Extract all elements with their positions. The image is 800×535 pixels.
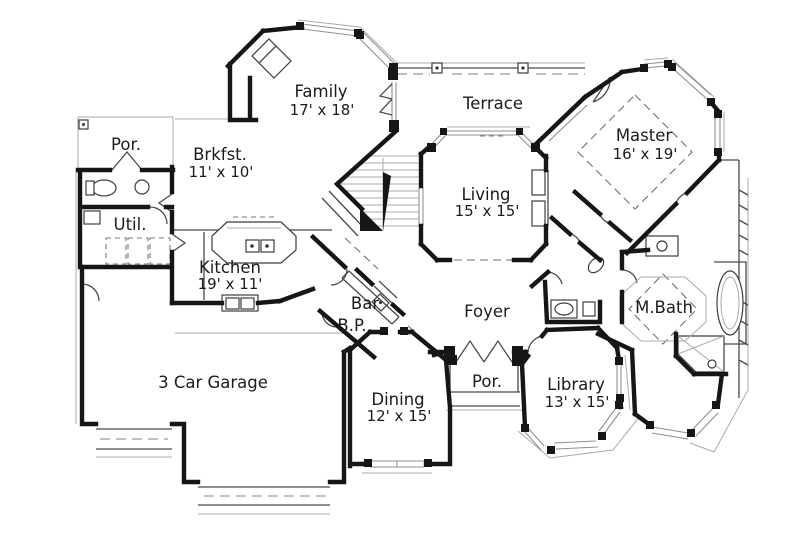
floor-plan-drawing: Family 17' x 18' Terrace Master 16' x 19… [0, 0, 800, 535]
living-builtin [532, 170, 545, 195]
room-label-por-upper: Por. [111, 135, 141, 154]
oven-icon [222, 295, 258, 311]
room-label-por-lower: Por. [472, 372, 502, 391]
room-label-foyer: Foyer [464, 302, 510, 321]
room-label-library: Library [547, 375, 605, 394]
kitchen-island [212, 222, 296, 263]
util-sink [84, 211, 100, 224]
dashed-lines [100, 74, 697, 496]
washer-dryer-icon [106, 238, 170, 264]
room-label-family: Family [294, 82, 347, 101]
eave-and-floor-lines [76, 20, 748, 514]
room-labels: Family 17' x 18' Terrace Master 16' x 19… [111, 82, 693, 425]
room-label-bp: B.P. [337, 316, 366, 335]
walls-hall-wc [532, 192, 630, 322]
room-label-mbath: M.Bath [635, 298, 693, 317]
room-label-brkfst: Brkfst. [193, 145, 247, 164]
room-dims-dining: 12' x 15' [367, 407, 432, 425]
room-dims-master: 16' x 19' [613, 145, 678, 163]
room-label-util: Util. [114, 215, 147, 234]
room-dims-brkfst: 11' x 10' [189, 163, 254, 181]
fireplace-icon [252, 39, 291, 78]
room-dims-kitchen: 19' x 11' [198, 275, 263, 293]
room-label-master: Master [616, 126, 673, 145]
sink-icon [135, 180, 149, 194]
hall-sink [657, 241, 667, 251]
floor-plan-page: Family 17' x 18' Terrace Master 16' x 19… [0, 0, 800, 535]
toilet-tank [86, 181, 94, 195]
wc-cabinet [583, 302, 595, 316]
toilet-icon [92, 180, 116, 196]
vanity-sink [555, 303, 573, 315]
room-label-bar: Bar [351, 294, 379, 313]
stair-rail-wedge [383, 172, 391, 231]
room-label-terrace: Terrace [462, 94, 523, 113]
living-builtin2 [532, 201, 545, 226]
bathtub-icon [714, 262, 746, 344]
room-label-garage: 3 Car Garage [158, 373, 268, 392]
room-dims-library: 13' x 15' [545, 393, 610, 411]
room-dims-living: 15' x 15' [455, 202, 520, 220]
room-dims-family: 17' x 18' [290, 101, 355, 119]
